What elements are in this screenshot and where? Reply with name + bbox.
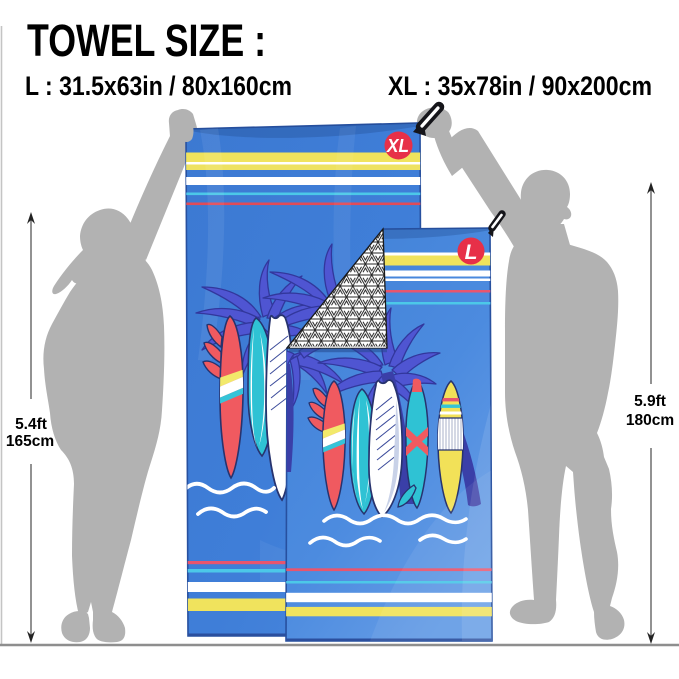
svg-text:L : 31.5x63in / 80x160cm: L : 31.5x63in / 80x160cm	[25, 71, 292, 101]
svg-text:165cm: 165cm	[6, 433, 54, 450]
svg-text:5.9ft: 5.9ft	[634, 393, 666, 410]
svg-text:L: L	[465, 241, 478, 264]
svg-text:TOWEL SIZE :: TOWEL SIZE :	[27, 15, 266, 66]
svg-text:180cm: 180cm	[626, 412, 674, 429]
svg-text:XL : 35x78in / 90x200cm: XL : 35x78in / 90x200cm	[388, 71, 652, 101]
svg-text:XL: XL	[386, 136, 409, 156]
svg-text:5.4ft: 5.4ft	[15, 416, 47, 433]
